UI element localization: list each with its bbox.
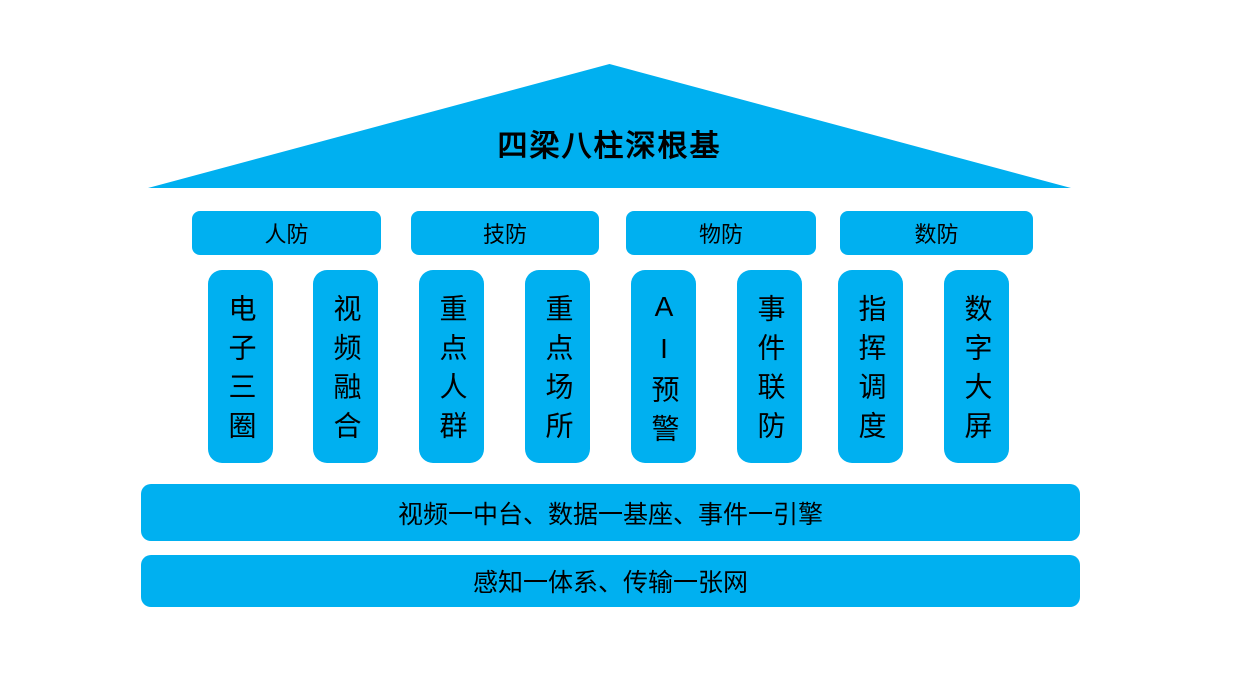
pillar-label: 数字大屏 xyxy=(957,294,997,450)
pillar-video-fusion: 视频融合 xyxy=(313,270,378,463)
beam-label: 物防 xyxy=(699,217,743,249)
roof-triangle: 四梁八柱深根基 xyxy=(148,64,1071,188)
pillar-key-places: 重点场所 xyxy=(525,270,590,463)
foundation-bar-platform: 视频一中台、数据一基座、事件一引擎 xyxy=(141,484,1080,541)
beam-label: 人防 xyxy=(264,217,308,249)
pillar-label: AI预警 xyxy=(644,291,684,453)
foundation-label: 感知一体系、传输一张网 xyxy=(473,563,748,599)
pillar-label: 事件联防 xyxy=(750,294,790,450)
pillar-label: 指挥调度 xyxy=(851,294,891,450)
pillar-ai-warning: AI预警 xyxy=(631,270,696,463)
beam-jifang: 技防 xyxy=(411,211,599,255)
beam-label: 数防 xyxy=(914,217,958,249)
foundation-bar-network: 感知一体系、传输一张网 xyxy=(141,555,1080,607)
diagram-title: 四梁八柱深根基 xyxy=(148,121,1071,165)
pillar-command-dispatch: 指挥调度 xyxy=(838,270,903,463)
pillar-label: 电子三圈 xyxy=(221,294,261,450)
foundation-label: 视频一中台、数据一基座、事件一引擎 xyxy=(398,495,823,531)
beam-shufang: 数防 xyxy=(840,211,1033,255)
temple-diagram: 四梁八柱深根基 人防 技防 物防 数防 电子三圈 视频融合 重点人群 重点场所 … xyxy=(0,0,1237,688)
beam-wufang: 物防 xyxy=(626,211,816,255)
pillar-digital-big-screen: 数字大屏 xyxy=(944,270,1009,463)
beam-label: 技防 xyxy=(483,217,527,249)
pillar-label: 重点场所 xyxy=(538,294,578,450)
pillar-key-people: 重点人群 xyxy=(419,270,484,463)
pillar-electronic-three-circles: 电子三圈 xyxy=(208,270,273,463)
beam-renfang: 人防 xyxy=(192,211,381,255)
pillar-label: 视频融合 xyxy=(326,294,366,450)
pillar-label: 重点人群 xyxy=(432,294,472,450)
pillar-event-joint-defense: 事件联防 xyxy=(737,270,802,463)
